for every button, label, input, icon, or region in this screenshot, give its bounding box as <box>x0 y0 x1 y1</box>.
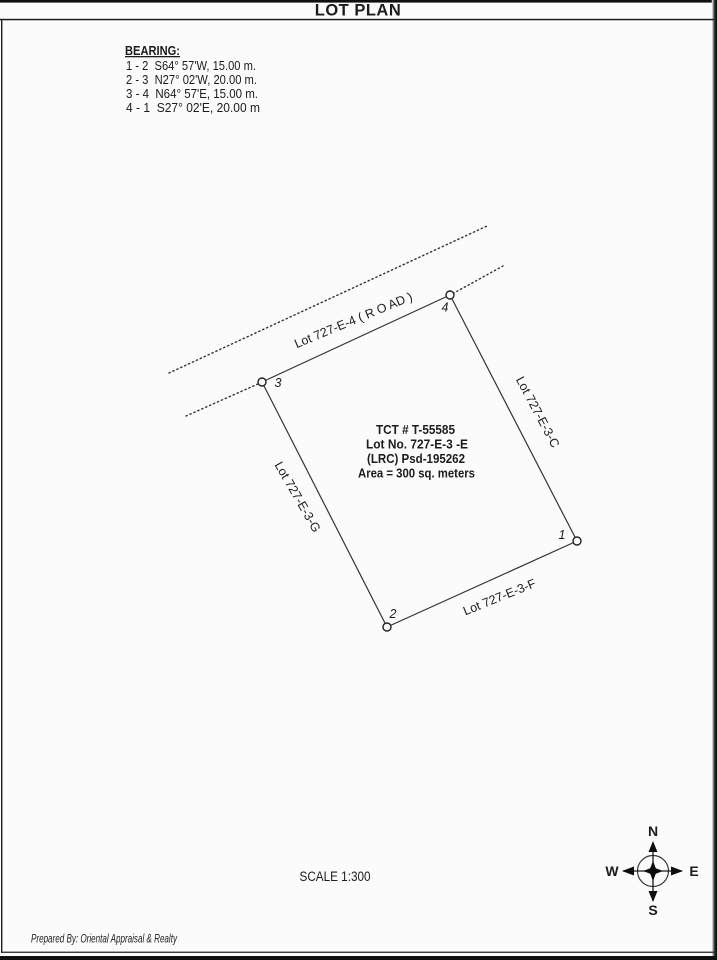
svg-text:W: W <box>605 863 619 879</box>
svg-text:Prepared By: Oriental Appraisa: Prepared By: Oriental Appraisal & Realty <box>31 931 178 945</box>
svg-text:4 - 1 S27° 02'E, 20.00 m: 4 - 1 S27° 02'E, 20.00 m <box>126 101 260 115</box>
svg-text:2 - 3 N27° 02'W, 20.00 m.: 2 - 3 N27° 02'W, 20.00 m. <box>126 73 257 87</box>
svg-text:3 - 4 N64° 57'E, 15.00 m.: 3 - 4 N64° 57'E, 15.00 m. <box>126 87 258 101</box>
svg-text:TCT # T-55585: TCT # T-55585 <box>376 423 455 437</box>
svg-text:2: 2 <box>389 607 397 621</box>
svg-text:1 - 2 S64° 57'W, 15.00 m.: 1 - 2 S64° 57'W, 15.00 m. <box>126 59 256 73</box>
svg-text:E: E <box>689 863 698 879</box>
svg-text:LOT PLAN: LOT PLAN <box>315 2 402 20</box>
svg-text:1: 1 <box>559 528 566 542</box>
svg-text:Area = 300 sq. meters: Area = 300 sq. meters <box>358 467 475 481</box>
svg-text:SCALE 1:300: SCALE 1:300 <box>300 869 371 884</box>
svg-text:(LRC) Psd-195262: (LRC) Psd-195262 <box>367 452 465 466</box>
svg-text:3: 3 <box>275 376 282 390</box>
svg-text:N: N <box>648 823 658 839</box>
svg-text:4: 4 <box>442 301 449 315</box>
svg-text:BEARING:: BEARING: <box>125 43 180 58</box>
svg-text:Lot No. 727-E-3 -E: Lot No. 727-E-3 -E <box>366 438 468 452</box>
svg-text:S: S <box>648 902 657 918</box>
